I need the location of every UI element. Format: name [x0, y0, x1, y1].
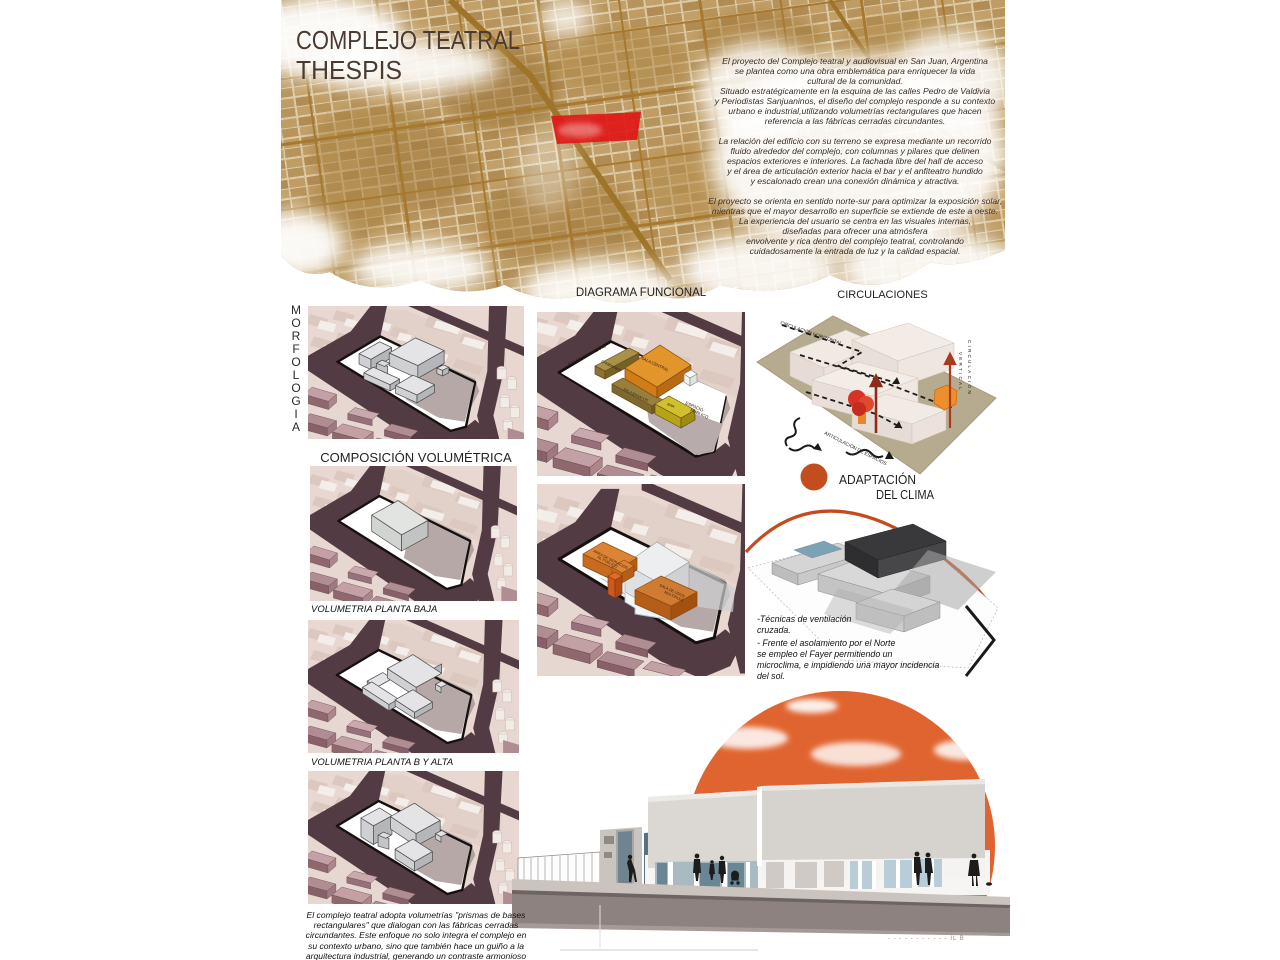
svg-text:se empleo el Fayer permitiendo: se empleo el Fayer permitiendo un	[757, 649, 893, 659]
svg-text:-Técnicas de ventilación: -Técnicas de ventilación	[757, 614, 851, 624]
svg-text:- - - - - - - - - - - IL B: - - - - - - - - - - - IL B	[888, 936, 965, 942]
svg-text:CIRCULACIÓN: CIRCULACIÓN	[967, 340, 973, 396]
svg-text:- Frente el asolamiento por el: - Frente el asolamiento por el Norte	[757, 638, 895, 648]
svg-text:THESPIS: THESPIS	[296, 55, 402, 85]
svg-text:microclima, e impidiendo una m: microclima, e impidiendo una mayor incid…	[757, 660, 939, 670]
svg-text:del sol.: del sol.	[757, 671, 785, 681]
svg-text:cruzada.: cruzada.	[757, 625, 791, 635]
svg-text:COMPLEJO TEATRAL: COMPLEJO TEATRAL	[296, 25, 520, 55]
svg-text:DEL CLIMA: DEL CLIMA	[876, 487, 934, 502]
svg-text:VERTICAL: VERTICAL	[958, 352, 963, 392]
svg-text:ADAPTACIÓN: ADAPTACIÓN	[839, 472, 916, 487]
